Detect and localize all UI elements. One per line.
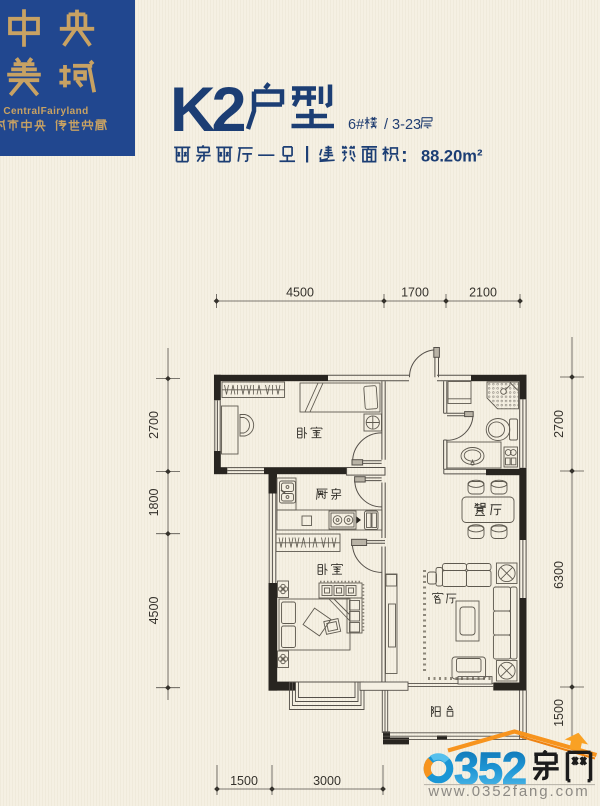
- svg-text:2700: 2700: [552, 410, 566, 438]
- svg-text:6300: 6300: [552, 561, 566, 589]
- svg-text:2700: 2700: [147, 411, 161, 439]
- svg-text:6#: 6#: [348, 117, 364, 133]
- svg-text:3000: 3000: [313, 774, 341, 788]
- svg-text:K2: K2: [170, 75, 244, 145]
- svg-text:2100: 2100: [469, 286, 497, 300]
- svg-text:1500: 1500: [230, 774, 258, 788]
- svg-text:4500: 4500: [147, 597, 161, 625]
- svg-text:www.0352fang.com: www.0352fang.com: [427, 783, 589, 800]
- svg-text:1700: 1700: [401, 286, 429, 300]
- svg-text:4500: 4500: [286, 286, 314, 300]
- svg-text:/ 3-23: / 3-23: [384, 117, 421, 133]
- svg-text:1500: 1500: [552, 699, 566, 727]
- svg-text:88.20m²: 88.20m²: [421, 148, 483, 166]
- svg-text:CentralFairyland: CentralFairyland: [3, 106, 88, 117]
- svg-text:1800: 1800: [147, 489, 161, 517]
